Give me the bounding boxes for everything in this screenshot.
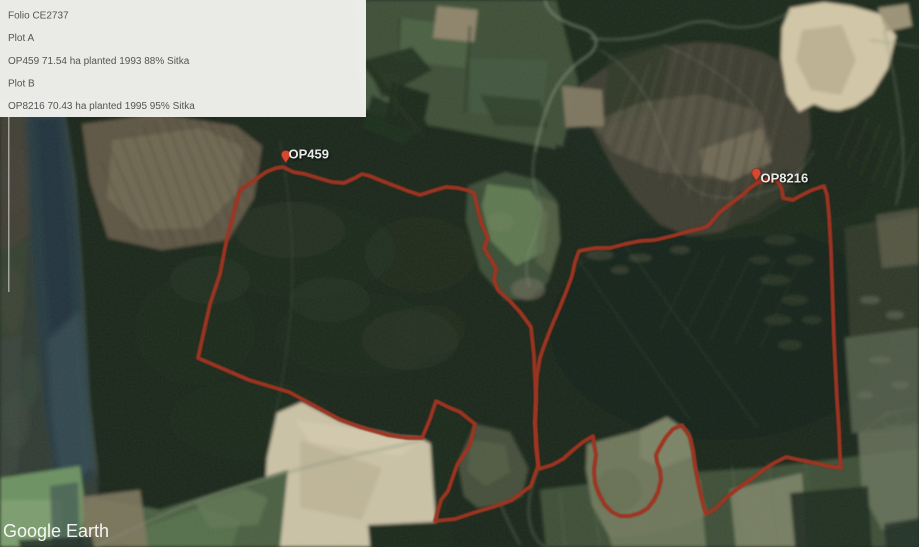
- svg-text:OP459 71.54 ha planted 1993 88: OP459 71.54 ha planted 1993 88% Sitka: [8, 56, 190, 67]
- svg-text:Folio CE2737: Folio CE2737: [8, 11, 69, 22]
- svg-text:Plot A: Plot A: [8, 33, 34, 44]
- svg-text:OP8216 70.43 ha planted 1995 9: OP8216 70.43 ha planted 1995 95% Sitka: [8, 101, 195, 112]
- svg-text:OP459: OP459: [289, 147, 329, 162]
- svg-text:OP8216: OP8216: [761, 171, 809, 186]
- svg-text:Google Earth: Google Earth: [3, 521, 109, 541]
- svg-text:Plot B: Plot B: [8, 79, 35, 90]
